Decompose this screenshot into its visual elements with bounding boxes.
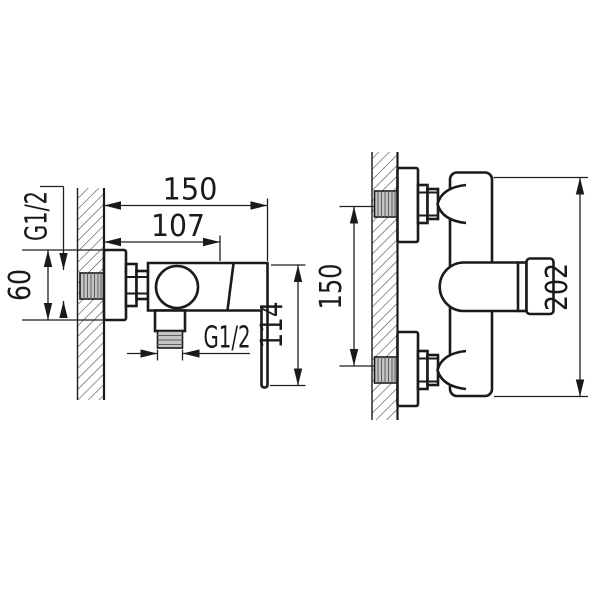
arrowhead xyxy=(44,303,52,320)
arrowhead xyxy=(141,349,158,357)
arrowhead xyxy=(294,369,302,386)
outlet-thread xyxy=(158,331,183,348)
dimension-label-connection-spacing: 150 xyxy=(314,264,349,310)
cartridge-dome xyxy=(440,263,518,312)
arrowhead xyxy=(350,349,358,366)
front-view: 150 202 xyxy=(314,152,588,420)
outlet-boss xyxy=(155,311,185,332)
drawing-canvas: 150 107 G1/2 60 G1/2 xyxy=(0,0,600,600)
arrowhead xyxy=(44,250,52,267)
arrowhead xyxy=(59,301,67,318)
dimension-label-total-width: 150 xyxy=(163,173,218,208)
arrowhead xyxy=(576,178,584,195)
arrowhead xyxy=(251,201,268,209)
arrowhead xyxy=(203,238,220,246)
dimension-label-wall-thread: G1/2 xyxy=(20,191,55,241)
arrowhead xyxy=(350,207,358,224)
arrowhead xyxy=(104,201,121,209)
bottom-connection-bell xyxy=(438,351,467,389)
side-view: 150 107 G1/2 60 G1/2 xyxy=(3,173,306,401)
arrowhead xyxy=(59,253,67,270)
escutcheon-plate xyxy=(104,250,126,320)
dimension-outlet-thread: G1/2 xyxy=(127,321,251,361)
dimension-label-escutcheon-height: 60 xyxy=(3,269,38,301)
bottom-escutcheon xyxy=(398,332,419,406)
top-connection-bell xyxy=(438,185,467,223)
wall-inlet-thread xyxy=(80,273,104,299)
eccentric-connector xyxy=(126,264,148,306)
dimension-connection-spacing: 150 xyxy=(314,207,375,367)
dimension-label-outlet-thread: G1/2 xyxy=(204,321,251,356)
dimension-label-cartridge-offset: 107 xyxy=(151,209,205,244)
arrowhead xyxy=(104,238,121,246)
arrowhead xyxy=(183,349,200,357)
top-eccentric xyxy=(418,185,428,223)
dimension-label-handle-height: 114 xyxy=(255,302,290,349)
top-escutcheon xyxy=(398,168,419,242)
bottom-eccentric xyxy=(418,351,428,389)
technical-drawing: 150 107 G1/2 60 G1/2 xyxy=(0,0,600,600)
arrowhead xyxy=(294,265,302,282)
arrowhead xyxy=(576,380,584,397)
cartridge-circle xyxy=(156,266,198,308)
dimension-label-overall-height: 202 xyxy=(540,263,575,311)
